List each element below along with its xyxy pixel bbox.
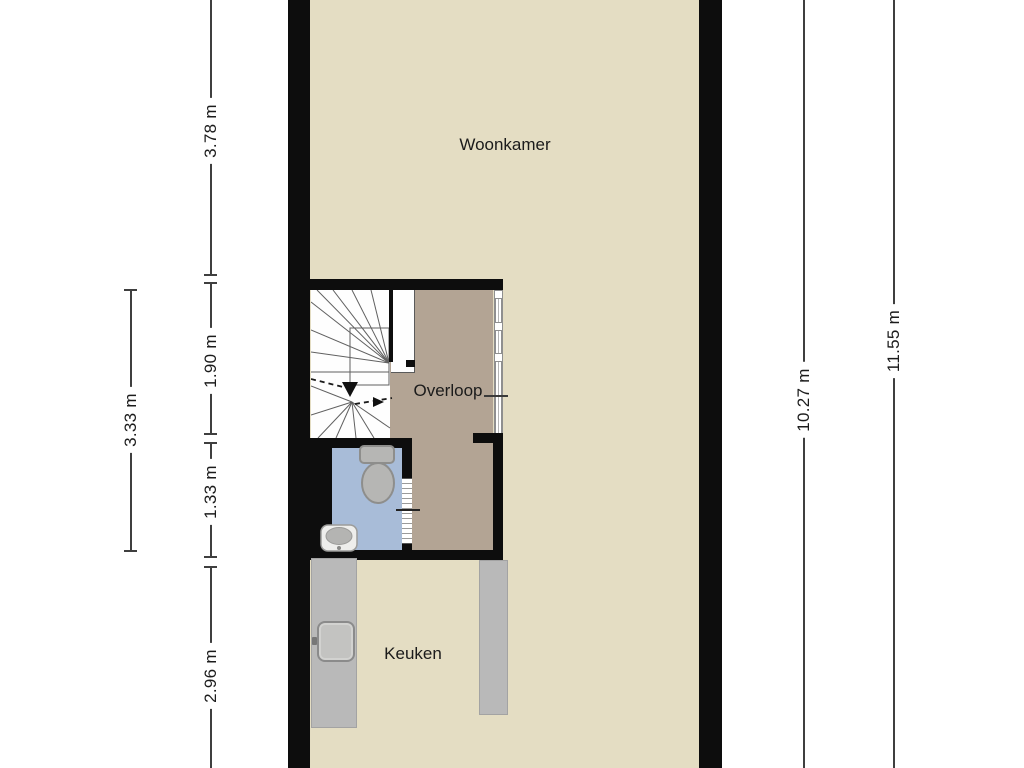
window-mullion [494,322,503,331]
wall-core-top [310,279,503,290]
wall-overloop-east-stub [473,433,503,443]
floorplan-canvas: 3.33 m 3.78 m 1.90 m 1.33 m 2.96 m 10.27… [0,0,1024,768]
dimension-line [893,0,895,768]
toilet-icon [353,441,401,509]
dimension-tick [204,282,217,284]
window-icon [494,290,503,433]
dimension-tick [204,433,217,435]
faucet-icon [312,637,317,645]
room-label-overloop: Overloop [398,381,498,401]
kitchen-counter-right [479,560,508,715]
dimension-tick [204,556,217,558]
wall-right [699,0,722,768]
wall-stairs-cap [406,360,415,367]
dimension-label: 10.27 m [793,362,815,438]
arrow-down-icon [342,382,358,397]
dimension-label: 11.55 m [883,304,905,378]
bathroom-door [402,478,412,544]
dimension-label: 3.33 m [120,387,142,453]
wall-stairs-divider [389,290,393,362]
bathroom-door-midline [396,509,420,511]
dimension-tick [204,274,217,276]
wall-bathroom-right-upper [402,438,412,478]
stairs-icon [311,290,415,438]
dimension-label: 2.96 m [200,643,222,709]
wall-left [288,0,310,768]
sink-icon [317,522,361,554]
overloop-leader-line [484,395,508,397]
window-mullion [494,290,503,299]
dimension-label: 3.78 m [200,98,222,164]
room-label-keuken: Keuken [363,644,463,664]
wall-overloop-east [493,443,503,553]
dimension-label: 1.33 m [200,459,222,525]
window-mullion [494,353,503,362]
dimension-tick [204,442,217,444]
dimension-tick [124,289,137,291]
room-label-woonkamer: Woonkamer [405,135,605,155]
dimension-tick [204,566,217,568]
dimension-tick [124,550,137,552]
kitchen-sink-icon [317,621,355,662]
dimension-label: 1.90 m [200,328,222,394]
